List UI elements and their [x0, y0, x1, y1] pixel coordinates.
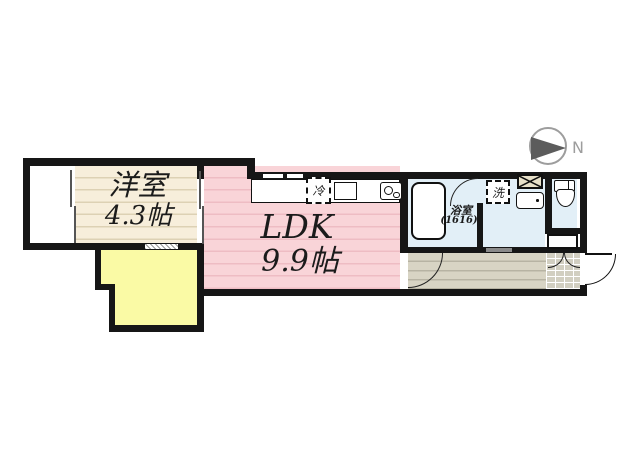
ldk-label: LDK	[227, 210, 367, 243]
washroom-door	[486, 248, 512, 252]
ldk-size: 9.9帖	[230, 247, 370, 277]
washbasin	[516, 192, 544, 209]
wall-washroom-toilet	[545, 172, 552, 232]
western-room-vent-window	[145, 244, 178, 249]
western-room-label: 洋室	[75, 171, 200, 200]
washing-machine-label: 洗	[488, 187, 508, 199]
compass-north-label: N	[572, 138, 584, 157]
north-arrow-icon	[529, 127, 569, 167]
balcony-area	[30, 166, 70, 243]
bathroom-size-note: (1616)	[429, 216, 489, 226]
stove-burner-small	[393, 192, 400, 199]
western-room-size: 4.3帖	[75, 203, 202, 229]
wall-left-outer	[23, 158, 30, 250]
pipe-space-cross-icon	[519, 176, 541, 187]
floor-plan: 冷 洗 洋室 4.3帖 LDK 9.9帖 浴室 (1616) N	[0, 0, 640, 455]
stove-burner-large	[384, 186, 393, 195]
stove-icon	[380, 182, 402, 200]
refrigerator-space: 冷	[306, 177, 331, 204]
wall-right-upper	[580, 172, 587, 253]
wall-right-lower	[580, 285, 587, 296]
refrigerator-label: 冷	[308, 185, 329, 197]
shoe-storage	[547, 234, 578, 249]
kitchen-sink	[334, 182, 357, 200]
wall-top-left	[23, 158, 255, 166]
entrance-door-arc	[585, 254, 616, 285]
wall-main-bottom	[197, 289, 587, 296]
pipe-space	[517, 174, 543, 189]
service-area-main	[114, 250, 197, 325]
washbasin-faucet-dot	[536, 199, 539, 202]
balcony-window-panel-1	[70, 170, 72, 207]
washing-machine-space: 洗	[486, 180, 510, 204]
kitchen-window-2	[287, 174, 303, 178]
kitchen-window-1	[263, 174, 283, 178]
wall-service-right	[197, 243, 204, 332]
wall-service-bottom	[109, 325, 204, 332]
